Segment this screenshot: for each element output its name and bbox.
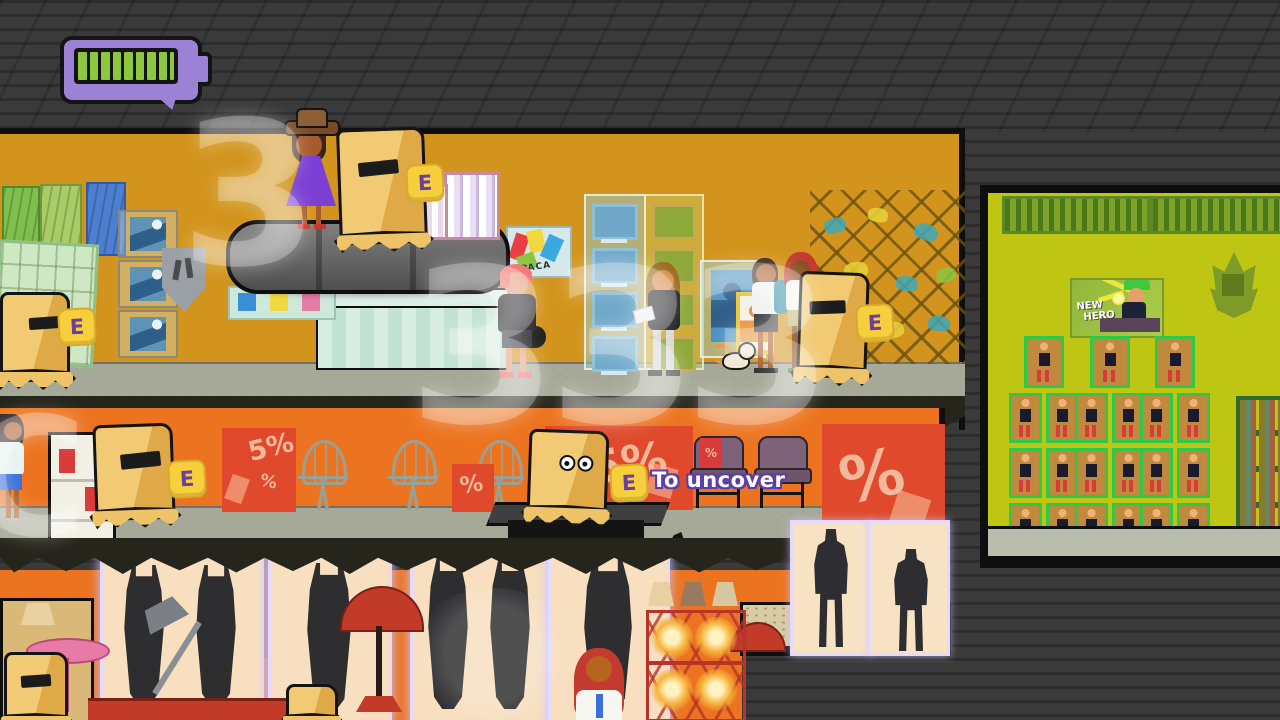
sale-poster: 5% % — [222, 428, 296, 512]
game-scene: APACA — [0, 0, 1280, 720]
figure-shelf-column — [1012, 336, 1076, 553]
key-label: E — [867, 311, 883, 336]
interact-key-level2[interactable]: E — [167, 459, 207, 499]
decor — [980, 185, 1280, 193]
silhouette-panel — [868, 520, 950, 656]
ghost-glow — [408, 588, 578, 720]
bag-disguise-bottom-left[interactable] — [4, 652, 68, 720]
tie — [596, 694, 603, 718]
bag-disguise-level2[interactable] — [92, 423, 175, 522]
interact-key-platform[interactable]: E — [405, 163, 445, 203]
sale-text: % — [833, 434, 911, 520]
ghost-digit-mid-right: 33 — [548, 240, 819, 455]
shutter — [1002, 196, 1150, 234]
ghost-digit-mid-left: 3 — [408, 240, 558, 455]
interact-key-right[interactable]: E — [855, 303, 895, 343]
key-label: E — [417, 171, 433, 196]
key-label: E — [69, 315, 85, 340]
ghost-letter-left: C — [0, 396, 87, 561]
battery-bars — [74, 48, 178, 84]
ghost-digit-top: 3 — [180, 96, 319, 296]
figure-shelf-column — [1078, 336, 1142, 553]
shutter — [1150, 196, 1280, 234]
figure-shelf-column — [1143, 336, 1207, 553]
sale-text: 5% — [245, 428, 296, 468]
wire-chair — [296, 440, 350, 510]
new-hero-poster: NEW HERO — [1070, 278, 1164, 338]
bag-partial-bottom[interactable] — [286, 684, 338, 720]
sale-text: % — [258, 470, 279, 493]
key-label: E — [621, 471, 637, 496]
octopus-shelf — [646, 582, 744, 720]
key-label: E — [179, 467, 195, 492]
silhouette-panel — [790, 520, 872, 656]
battery-meter — [60, 36, 202, 104]
decor — [980, 185, 988, 568]
head — [586, 656, 612, 682]
sale-text: % — [458, 470, 485, 500]
decor — [985, 556, 1280, 568]
interact-key-left[interactable]: E — [57, 307, 97, 347]
